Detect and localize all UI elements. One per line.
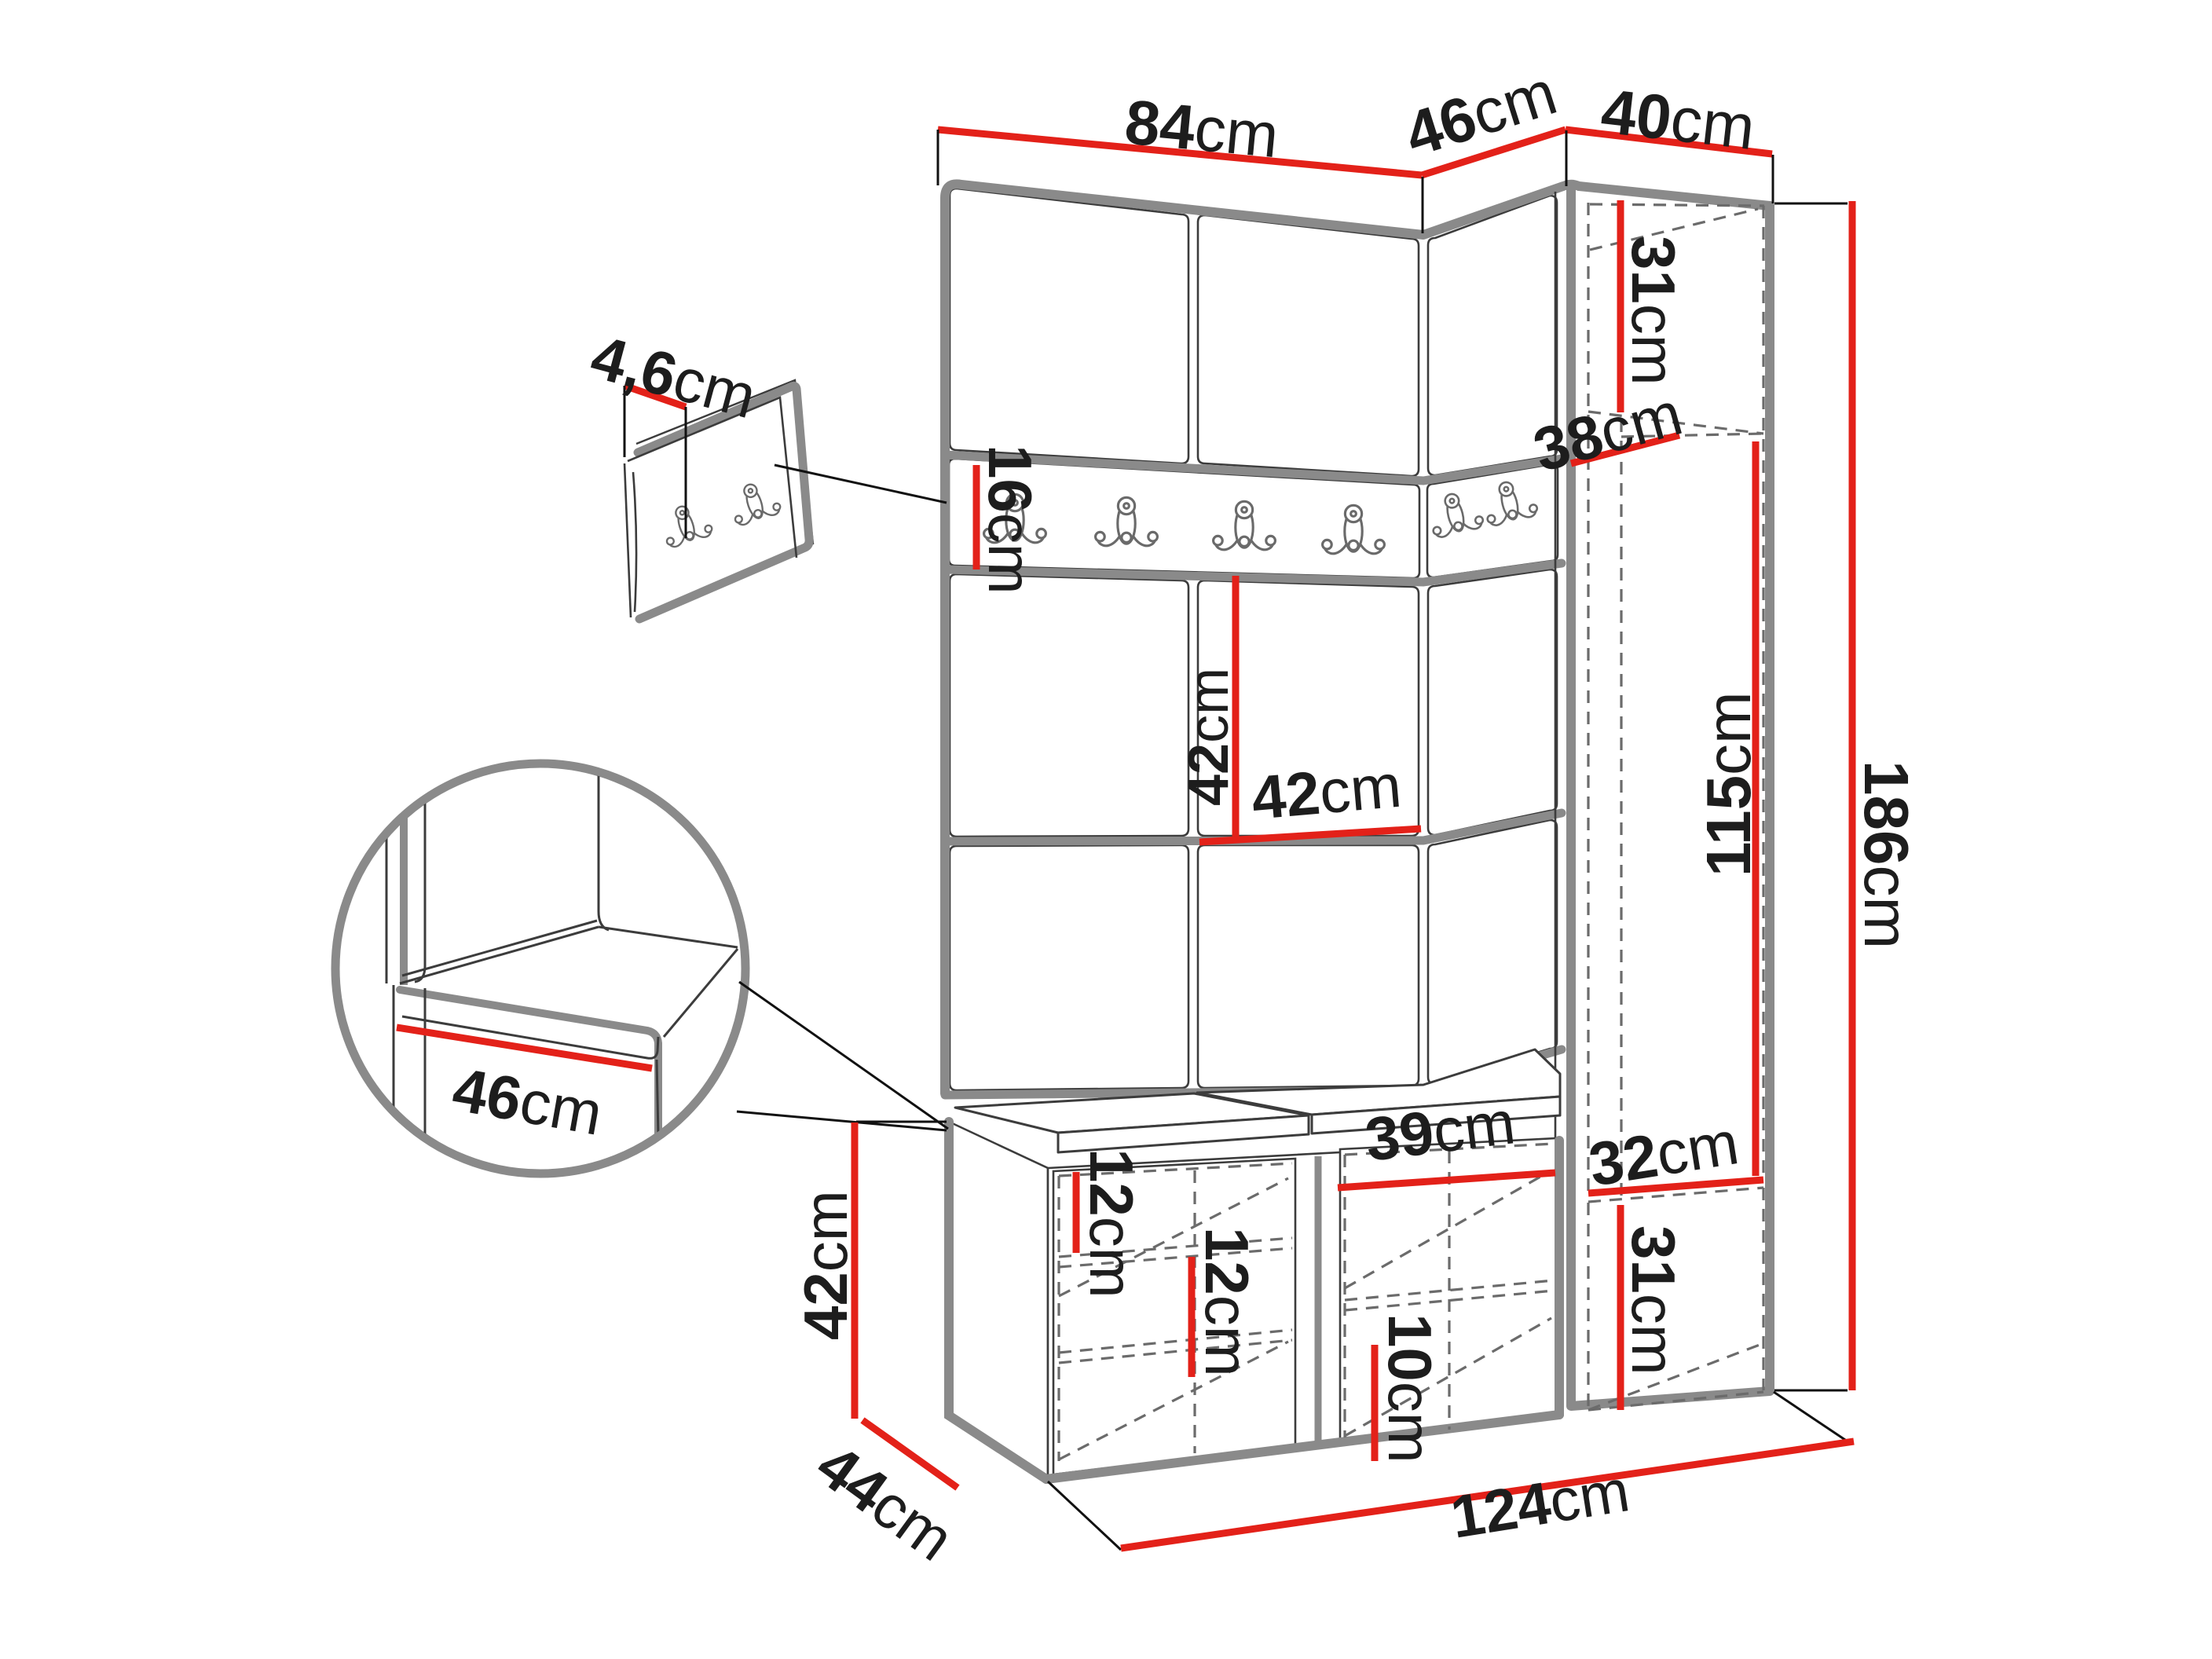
svg-text:186cm: 186cm: [1851, 760, 1921, 949]
svg-text:12cm: 12cm: [1077, 1148, 1146, 1298]
svg-text:115cm: 115cm: [1694, 691, 1763, 877]
svg-text:12cm: 12cm: [1192, 1227, 1262, 1377]
svg-text:31cm: 31cm: [1619, 1225, 1688, 1375]
svg-text:42cm: 42cm: [791, 1190, 860, 1340]
svg-text:84cm: 84cm: [1122, 86, 1281, 170]
svg-text:42cm: 42cm: [1177, 668, 1240, 806]
svg-text:10cm: 10cm: [1375, 1313, 1445, 1463]
svg-text:42cm: 42cm: [1249, 751, 1404, 833]
svg-text:31cm: 31cm: [1619, 236, 1688, 386]
svg-text:16cm: 16cm: [976, 445, 1045, 595]
